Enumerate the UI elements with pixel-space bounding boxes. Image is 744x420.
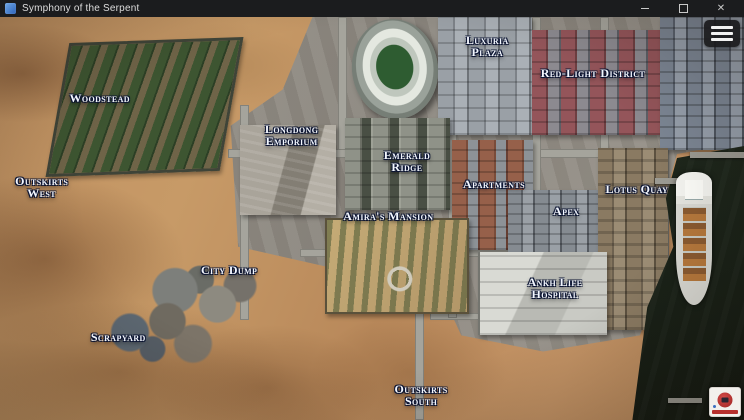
map-label-text: City Dump xyxy=(201,264,257,276)
minimize-button[interactable] xyxy=(626,0,664,17)
map-label-text: Lotus Quay xyxy=(605,183,668,195)
window-title: Symphony of the Serpent xyxy=(22,3,626,14)
map-label-text: Amira's Mansion xyxy=(343,210,433,222)
logo-band xyxy=(712,410,738,414)
map-label-emerald-ridge[interactable]: EmeraldRidge xyxy=(384,149,430,173)
maximize-button[interactable] xyxy=(664,0,702,17)
title-bar[interactable]: Symphony of the Serpent ✕ xyxy=(0,0,744,17)
map-labels: WoodsteadOutskirtsWestLongdongEmporiumEm… xyxy=(0,17,744,420)
app-icon xyxy=(5,3,16,14)
maximize-icon xyxy=(679,4,688,13)
logo-face-icon xyxy=(722,397,729,402)
map-label-text: Woodstead xyxy=(69,92,130,104)
map-label-longdong-emporium[interactable]: LongdongEmporium xyxy=(265,123,318,147)
hamburger-menu-icon xyxy=(711,38,733,41)
hamburger-menu-icon xyxy=(711,32,733,35)
map-label-red-light-district[interactable]: Red-Light District xyxy=(541,67,645,79)
map-label-text: Scrapyard xyxy=(91,331,146,343)
map-label-city-dump[interactable]: City Dump xyxy=(201,264,257,276)
minimize-icon xyxy=(641,8,649,9)
studio-logo-badge[interactable] xyxy=(709,387,741,417)
map-label-text: Hospital xyxy=(528,288,583,300)
map-label-text: West xyxy=(15,187,68,199)
map-label-text: South xyxy=(395,395,448,407)
map-label-text: Red-Light District xyxy=(541,67,645,79)
close-button[interactable]: ✕ xyxy=(702,0,740,17)
map-label-text: Emporium xyxy=(265,135,318,147)
map-label-text: Plaza xyxy=(466,46,509,58)
map-label-luxuria-plaza[interactable]: LuxuriaPlaza xyxy=(466,34,509,58)
map-label-scrapyard[interactable]: Scrapyard xyxy=(91,331,146,343)
menu-button[interactable] xyxy=(704,20,740,47)
map-label-apex[interactable]: Apex xyxy=(553,205,579,217)
map-label-outskirts-south[interactable]: OutskirtsSouth xyxy=(395,383,448,407)
map-label-outskirts-west[interactable]: OutskirtsWest xyxy=(15,175,68,199)
map-label-apartments[interactable]: Apartments xyxy=(463,178,525,190)
map-label-amiras-mansion[interactable]: Amira's Mansion xyxy=(343,210,433,222)
map-label-ankh-life-hospital[interactable]: Ankh LifeHospital xyxy=(528,276,583,300)
map-label-text: Apex xyxy=(553,205,579,217)
map-label-text: Ridge xyxy=(384,161,430,173)
window-controls: ✕ xyxy=(626,0,740,17)
game-window: Symphony of the Serpent ✕ xyxy=(0,0,744,420)
map-label-lotus-quay[interactable]: Lotus Quay xyxy=(605,183,668,195)
game-map[interactable]: WoodsteadOutskirtsWestLongdongEmporiumEm… xyxy=(0,17,744,420)
logo-dot xyxy=(713,405,716,408)
map-label-text: Apartments xyxy=(463,178,525,190)
map-label-woodstead[interactable]: Woodstead xyxy=(69,92,130,104)
hamburger-menu-icon xyxy=(711,26,733,29)
